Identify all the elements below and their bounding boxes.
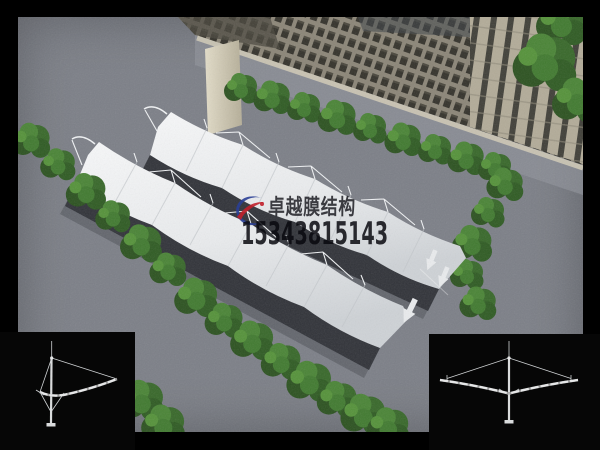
rendering-canvas: 卓越膜结构 15343815143 (0, 0, 600, 450)
double-cantilever-diagram (429, 334, 600, 450)
detail-diagram-right-box (429, 334, 600, 450)
single-cantilever-diagram (0, 332, 135, 450)
detail-diagram-left-box (0, 332, 135, 450)
